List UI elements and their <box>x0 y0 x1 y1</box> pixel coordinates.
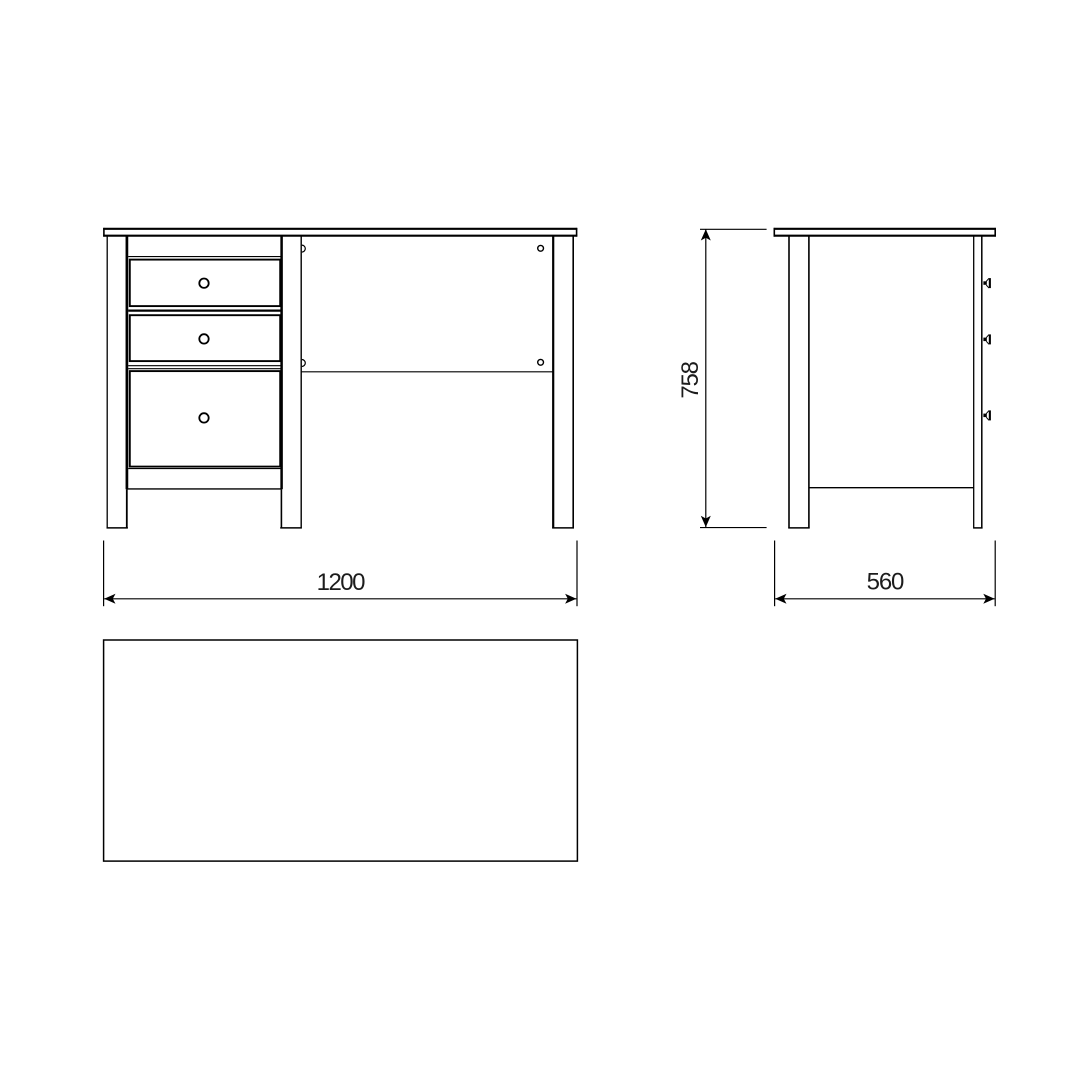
svg-text:1200: 1200 <box>317 569 366 596</box>
svg-text:560: 560 <box>867 569 904 596</box>
svg-text:758: 758 <box>677 361 704 398</box>
